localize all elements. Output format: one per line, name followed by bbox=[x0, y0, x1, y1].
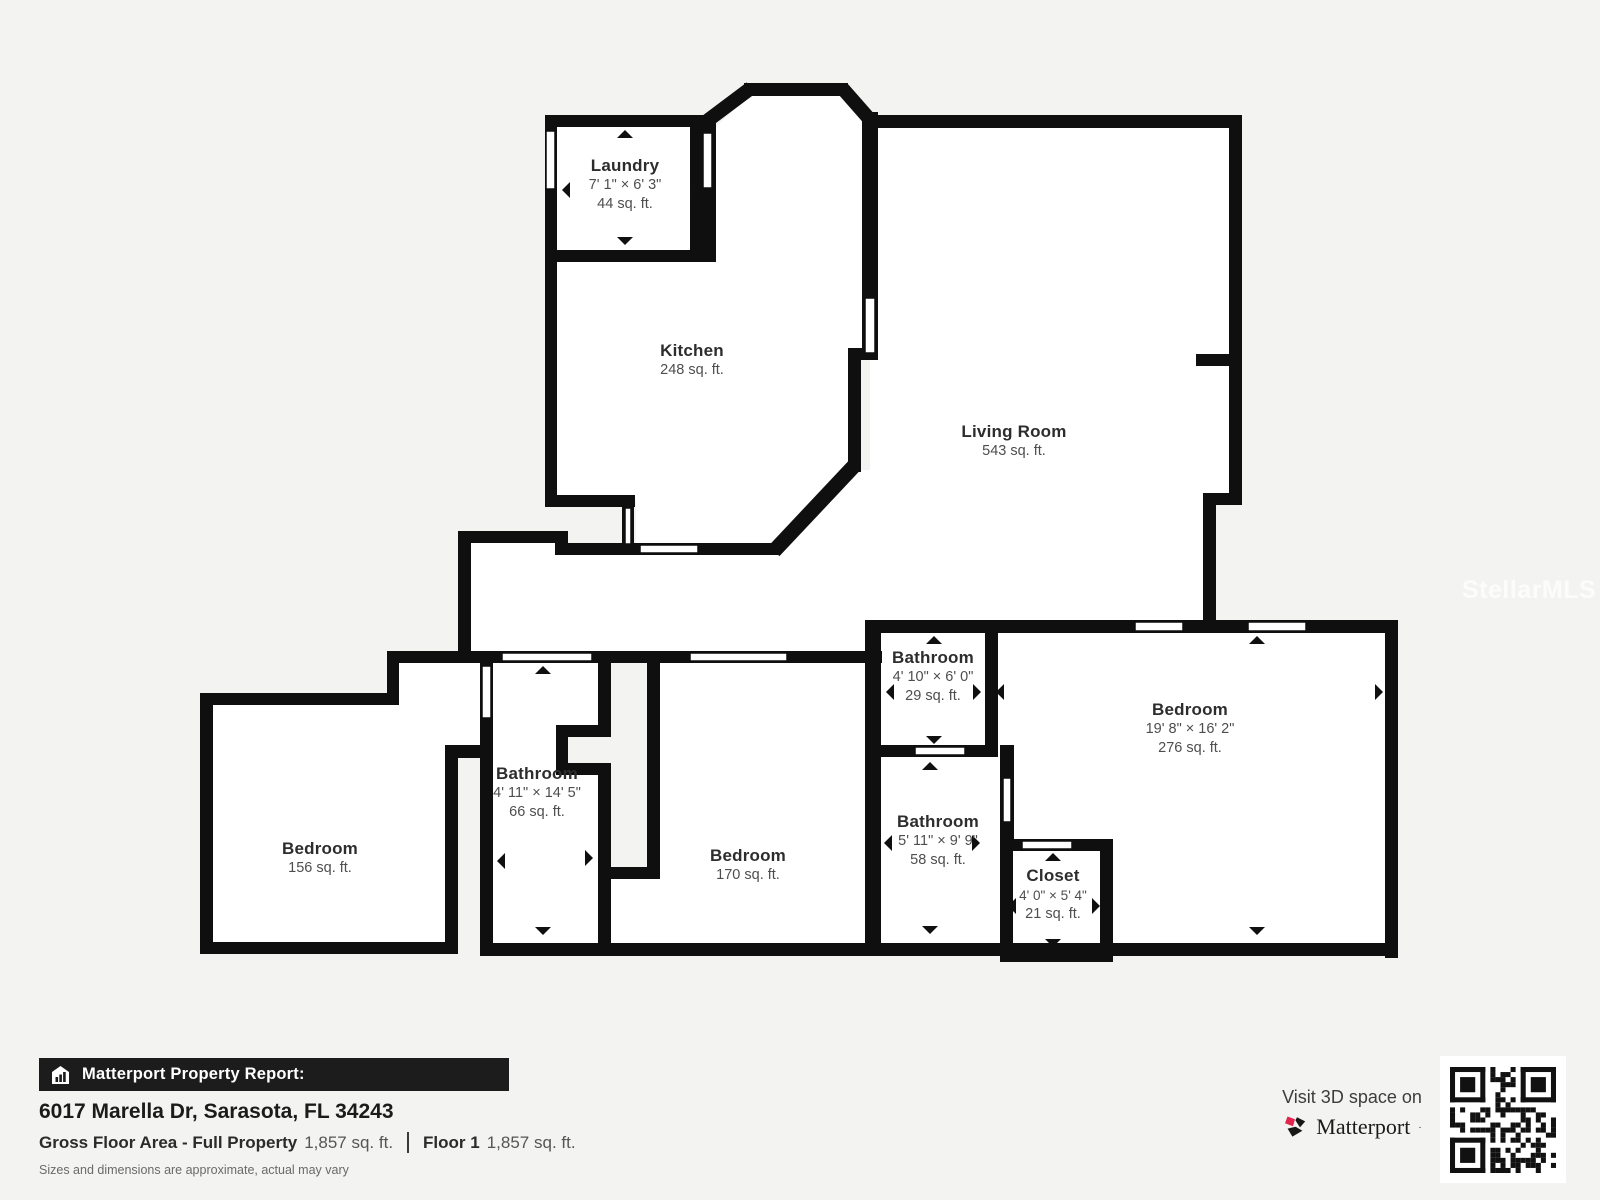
wall-bath29-right bbox=[985, 620, 998, 757]
room-area: 66 sq. ft. bbox=[493, 803, 581, 822]
room-area: 29 sq. ft. bbox=[892, 687, 974, 706]
room-area: 44 sq. ft. bbox=[589, 195, 662, 214]
door-channel-slot bbox=[625, 508, 631, 544]
wall-hall-bottom bbox=[390, 651, 882, 663]
wall-living-top bbox=[862, 115, 1242, 128]
room-name: Bedroom bbox=[1146, 700, 1235, 720]
room-label-closet: Closet 4' 0" × 5' 4" 21 sq. ft. bbox=[1019, 866, 1087, 924]
wall-bump-top bbox=[744, 83, 848, 96]
wall-living-stub bbox=[1196, 354, 1242, 366]
hall-floor-a bbox=[466, 543, 568, 658]
room-label-living-room: Living Room 543 sq. ft. bbox=[961, 422, 1066, 461]
room-label-bathroom-29: Bathroom 4' 10" × 6' 0" 29 sq. ft. bbox=[892, 648, 974, 706]
wall-bed156-bottom bbox=[200, 942, 458, 954]
building-report-icon bbox=[50, 1065, 71, 1085]
door-hall-b bbox=[690, 653, 787, 661]
window-bath66-left bbox=[482, 666, 491, 718]
bedroom156-floor bbox=[210, 700, 452, 946]
disclaimer-text: Sizes and dimensions are approximate, ac… bbox=[39, 1163, 349, 1177]
room-area: 58 sq. ft. bbox=[897, 851, 979, 870]
floor-plan-page: Laundry 7' 1" × 6' 3" 44 sq. ft. Kitchen… bbox=[0, 0, 1600, 1200]
room-area: 543 sq. ft. bbox=[961, 442, 1066, 461]
wall-living-right bbox=[1229, 115, 1242, 505]
door-hall-a bbox=[502, 653, 592, 661]
property-address: 6017 Marella Dr, Sarasota, FL 34243 bbox=[39, 1100, 394, 1124]
wall-bed276-right bbox=[1385, 620, 1398, 958]
bath66-notch-void bbox=[566, 735, 608, 765]
wall-kitchen-right-lower bbox=[848, 352, 861, 472]
wall-hall-top bbox=[458, 531, 568, 543]
room-area: 170 sq. ft. bbox=[710, 866, 786, 885]
floorplan-drawing bbox=[0, 0, 1600, 1030]
room-dims: 4' 11" × 14' 5" bbox=[493, 784, 581, 803]
floor-area-stats: Gross Floor Area - Full Property 1,857 s… bbox=[39, 1132, 576, 1153]
wall-bed156-left bbox=[200, 693, 213, 954]
window-laundry-right bbox=[703, 133, 712, 188]
room-name: Bathroom bbox=[897, 812, 979, 832]
room-label-bedroom-276: Bedroom 19' 8" × 16' 2" 276 sq. ft. bbox=[1146, 700, 1235, 758]
room-name: Living Room bbox=[961, 422, 1066, 442]
room-area: 276 sq. ft. bbox=[1146, 739, 1235, 758]
room-dims: 5' 11" × 9' 9" bbox=[897, 832, 979, 851]
door-kitchen-bottom bbox=[640, 545, 698, 553]
floor-label: Floor 1 bbox=[423, 1133, 480, 1153]
room-name: Bedroom bbox=[710, 846, 786, 866]
wall-closet-left bbox=[1000, 839, 1013, 962]
door-closet bbox=[1022, 841, 1072, 849]
wall-hall-left bbox=[458, 531, 471, 663]
wall-laundry-bottom bbox=[545, 250, 704, 262]
room-area: 248 sq. ft. bbox=[660, 361, 724, 380]
void-areas bbox=[566, 735, 608, 765]
brand-trademark: · bbox=[1418, 1122, 1421, 1133]
gross-area-value: 1,857 sq. ft. bbox=[304, 1133, 393, 1153]
wall-bath66-right-upper bbox=[598, 651, 611, 737]
visit-text: Visit 3D space on bbox=[1252, 1086, 1452, 1108]
living-room-floor bbox=[870, 122, 1240, 630]
room-name: Laundry bbox=[589, 156, 662, 176]
wall-bed170-left bbox=[647, 651, 660, 879]
room-label-bedroom-170: Bedroom 170 sq. ft. bbox=[710, 846, 786, 885]
room-label-laundry: Laundry 7' 1" × 6' 3" 44 sq. ft. bbox=[589, 156, 662, 214]
wall-bed156-right bbox=[445, 745, 458, 954]
stellar-mls-watermark: StellarMLS bbox=[1462, 576, 1596, 605]
wall-bed156-top bbox=[200, 693, 392, 705]
wall-section-top bbox=[865, 620, 1398, 633]
bedroom170-floor bbox=[604, 658, 872, 946]
floor-value: 1,857 sq. ft. bbox=[487, 1133, 576, 1153]
wall-bed170-right bbox=[865, 620, 881, 956]
room-label-bathroom-58: Bathroom 5' 11" × 9' 9" 58 sq. ft. bbox=[897, 812, 979, 870]
qr-code-svg bbox=[1450, 1067, 1556, 1173]
room-label-bathroom-66: Bathroom 4' 11" × 14' 5" 66 sq. ft. bbox=[493, 764, 581, 822]
room-name: Bedroom bbox=[282, 839, 358, 859]
room-area: 21 sq. ft. bbox=[1019, 905, 1087, 924]
room-name: Closet bbox=[1019, 866, 1087, 886]
room-name: Kitchen bbox=[660, 341, 724, 361]
room-label-bedroom-156: Bedroom 156 sq. ft. bbox=[282, 839, 358, 878]
room-dims: 4' 10" × 6' 0" bbox=[892, 668, 974, 687]
matterport-wordmark: Matterport bbox=[1316, 1114, 1410, 1140]
room-area: 156 sq. ft. bbox=[282, 859, 358, 878]
report-title: Matterport Property Report: bbox=[82, 1065, 305, 1084]
wall-closet-bottom bbox=[1000, 950, 1113, 962]
room-dims: 19' 8" × 16' 2" bbox=[1146, 720, 1235, 739]
matterport-brand-row: Matterport· bbox=[1252, 1114, 1452, 1140]
wall-laundry-top bbox=[545, 115, 704, 127]
gross-area-label: Gross Floor Area - Full Property bbox=[39, 1133, 297, 1153]
window-kitchen-living bbox=[865, 298, 875, 353]
room-name: Bathroom bbox=[892, 648, 974, 668]
matterport-logo-icon bbox=[1282, 1114, 1308, 1140]
room-dims: 4' 0" × 5' 4" bbox=[1019, 886, 1087, 905]
wall-void-bottom bbox=[598, 867, 660, 879]
room-dims: 7' 1" × 6' 3" bbox=[589, 176, 662, 195]
door-bath29 bbox=[915, 747, 965, 755]
wall-living-right-lower bbox=[1203, 493, 1216, 632]
room-name: Bathroom bbox=[493, 764, 581, 784]
window-bed276-top-b bbox=[1248, 622, 1306, 631]
visit-3d-block: Visit 3D space on Matterport· bbox=[1252, 1086, 1452, 1140]
qr-code-panel bbox=[1440, 1056, 1566, 1183]
window-bed276-left bbox=[1003, 778, 1011, 822]
divider bbox=[407, 1132, 409, 1153]
report-title-bar: Matterport Property Report: bbox=[39, 1058, 509, 1091]
wall-bottom-main bbox=[480, 943, 1398, 956]
wall-closet-right bbox=[1100, 839, 1113, 962]
window-bed276-top-a bbox=[1135, 622, 1183, 631]
window-laundry-left bbox=[546, 131, 555, 189]
hall-floor-b bbox=[568, 555, 783, 658]
wall-bath66-right-lower bbox=[598, 763, 611, 954]
room-label-kitchen: Kitchen 248 sq. ft. bbox=[660, 341, 724, 380]
